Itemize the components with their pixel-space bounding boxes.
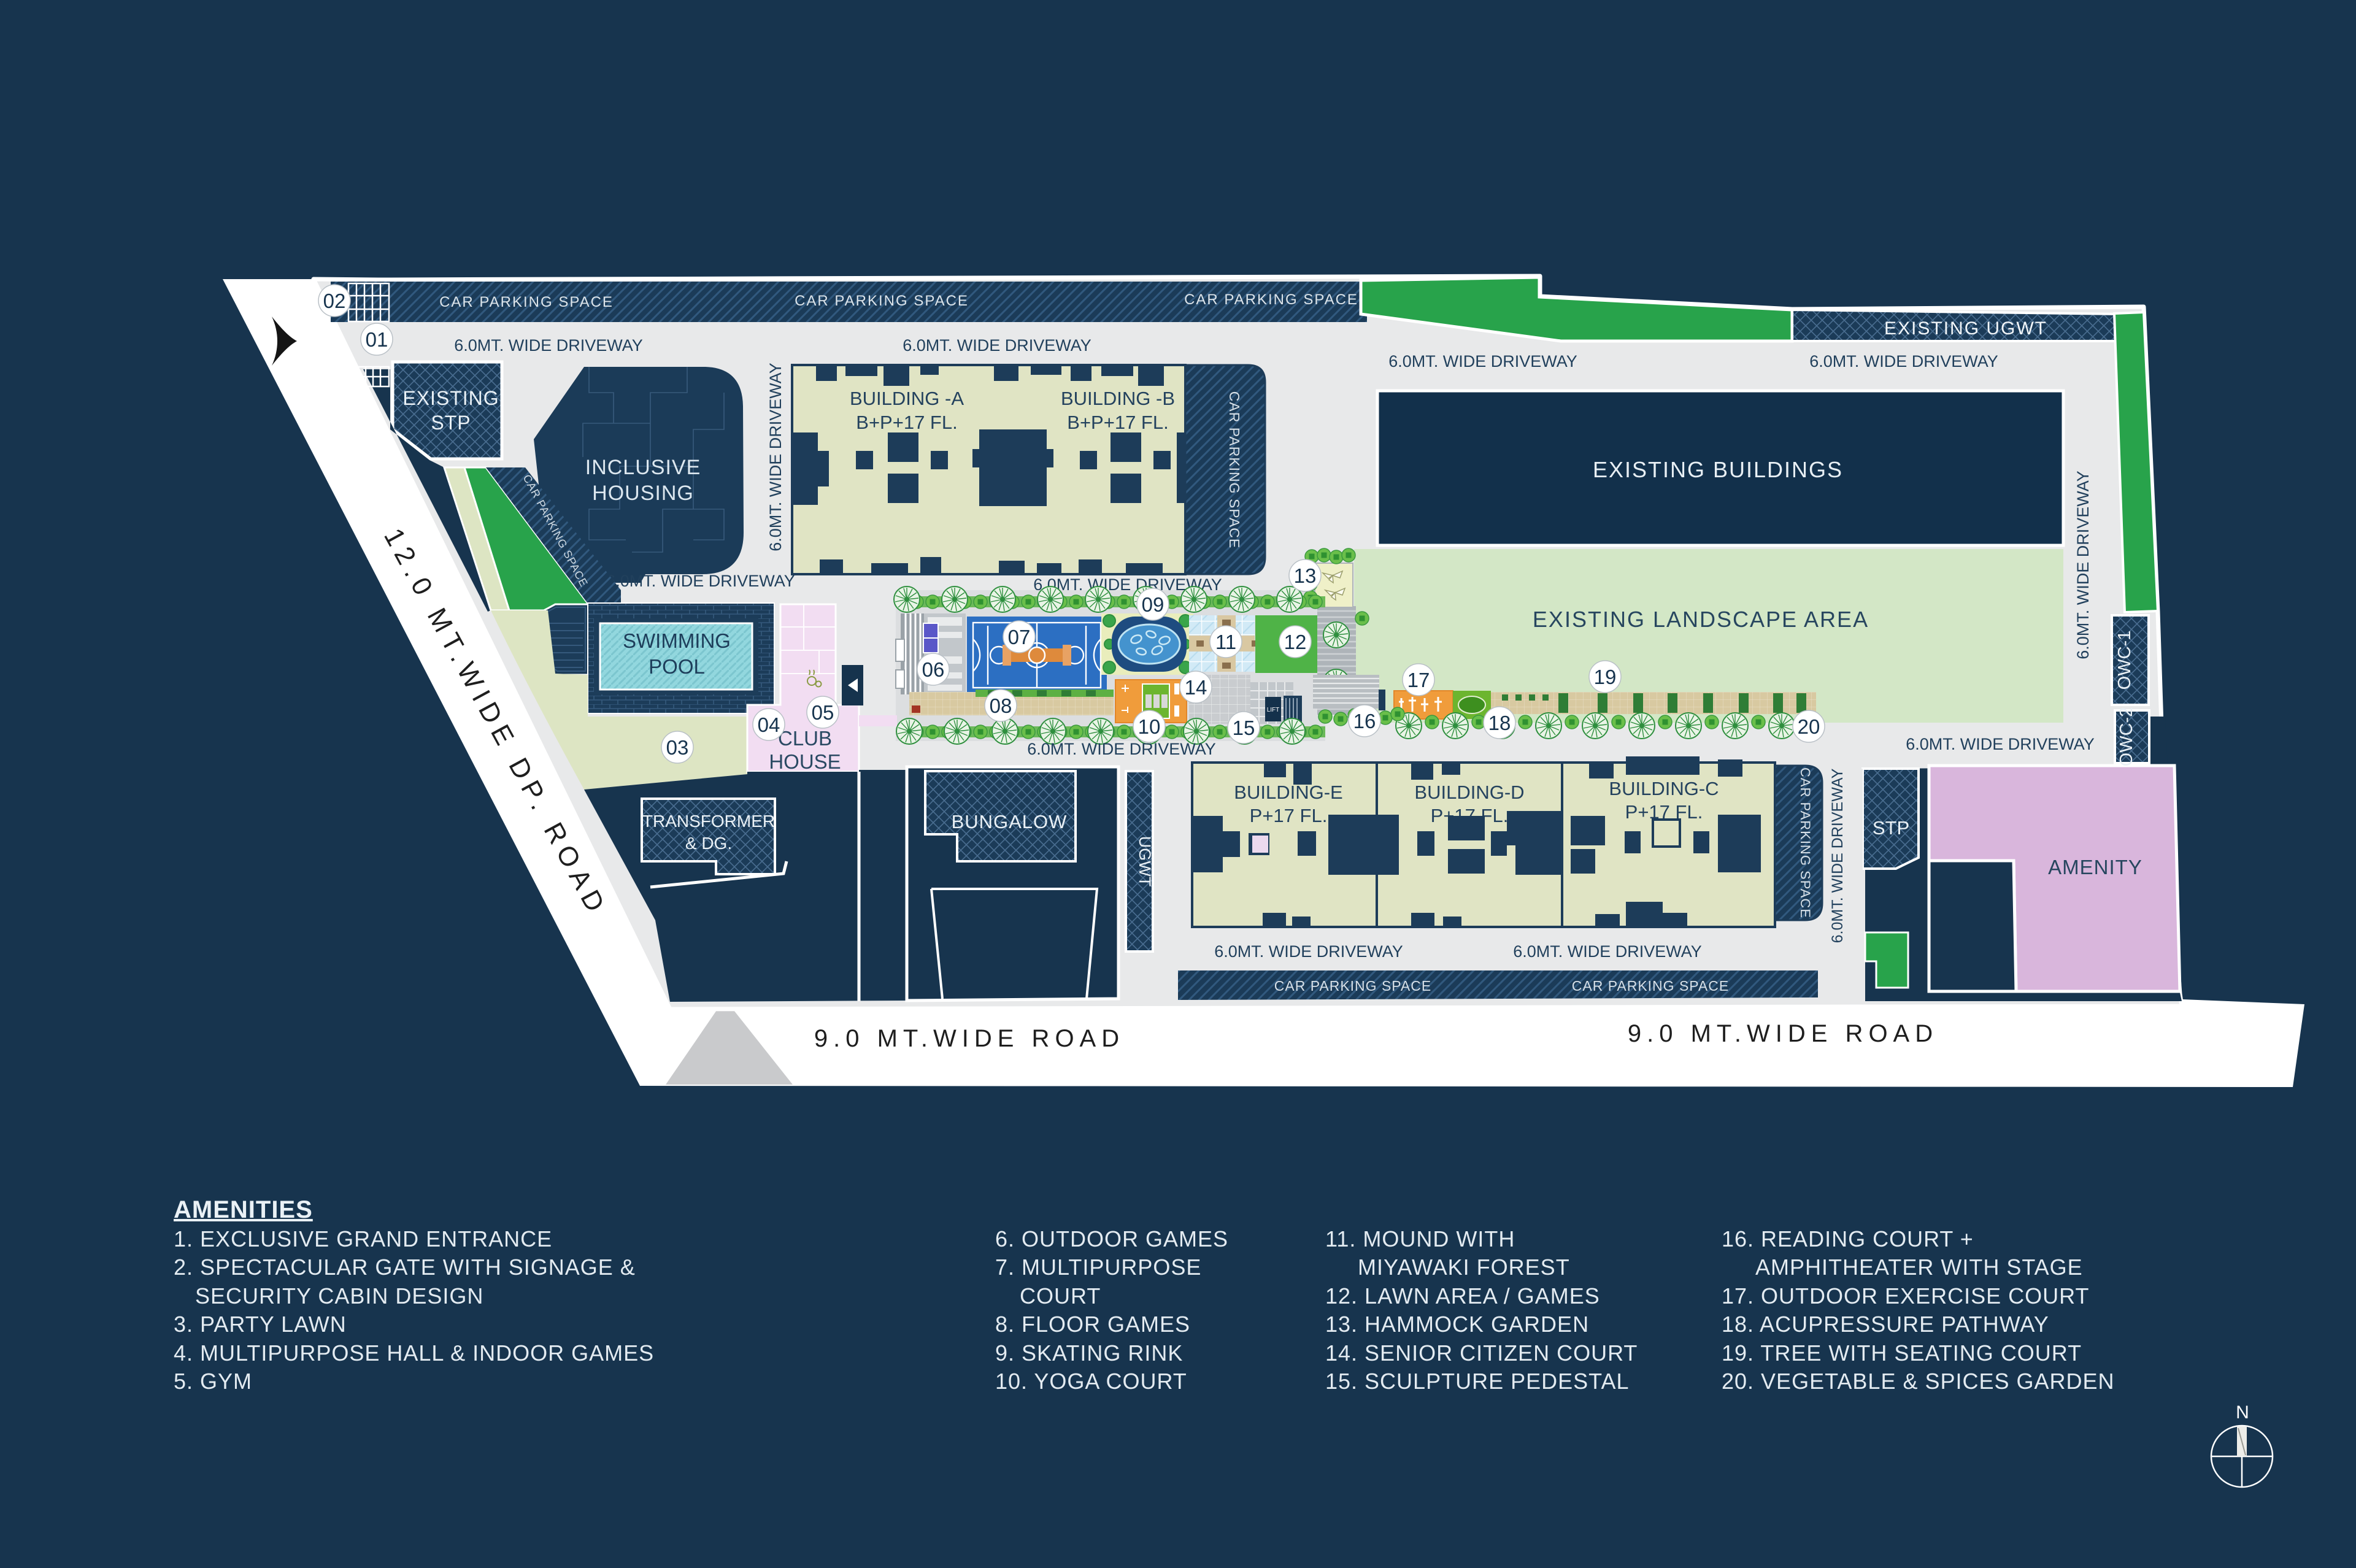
svg-text:14: 14 (1185, 676, 1207, 699)
svg-text:6. OUTDOOR GAMES: 6. OUTDOOR GAMES (995, 1226, 1228, 1251)
svg-text:MIYAWAKI FOREST: MIYAWAKI FOREST (1358, 1255, 1570, 1280)
svg-text:P+17 FL.: P+17 FL. (1250, 805, 1328, 826)
svg-text:9.0 MT.WIDE ROAD: 9.0 MT.WIDE ROAD (1628, 1020, 1938, 1047)
svg-text:03: 03 (666, 736, 689, 759)
svg-text:04: 04 (758, 713, 780, 736)
svg-text:8. FLOOR GAMES: 8. FLOOR GAMES (995, 1312, 1190, 1337)
svg-text:6.0MT. WIDE DRIVEWAY: 6.0MT. WIDE DRIVEWAY (766, 363, 785, 551)
svg-text:UGWT: UGWT (1136, 836, 1154, 886)
svg-text:CAR PARKING SPACE: CAR PARKING SPACE (1274, 978, 1431, 994)
svg-text:AMENITIES: AMENITIES (174, 1196, 313, 1223)
svg-text:EXISTING LANDSCAPE AREA: EXISTING LANDSCAPE AREA (1533, 607, 1869, 632)
svg-text:BUILDING-C: BUILDING-C (1609, 778, 1719, 799)
svg-text:6.0MT. WIDE DRIVEWAY: 6.0MT. WIDE DRIVEWAY (1809, 352, 1998, 371)
svg-text:6.0MT. WIDE DRIVEWAY: 6.0MT. WIDE DRIVEWAY (1513, 942, 1702, 961)
svg-text:BUILDING -A: BUILDING -A (850, 388, 964, 409)
svg-text:EXISTING UGWT: EXISTING UGWT (1884, 318, 2047, 339)
svg-text:02: 02 (323, 290, 346, 312)
svg-text:13: 13 (1294, 564, 1317, 587)
svg-text:STP: STP (1873, 817, 1909, 839)
svg-text:SECURITY CABIN DESIGN: SECURITY CABIN DESIGN (195, 1283, 483, 1309)
svg-text:19. TREE WITH SEATING COURT: 19. TREE WITH SEATING COURT (1722, 1340, 2082, 1366)
svg-text:CAR PARKING SPACE: CAR PARKING SPACE (1226, 391, 1242, 548)
svg-text:01: 01 (366, 328, 388, 351)
svg-text:13. HAMMOCK GARDEN: 13. HAMMOCK GARDEN (1325, 1312, 1589, 1337)
svg-text:05: 05 (812, 701, 834, 724)
svg-text:10: 10 (1138, 715, 1161, 738)
svg-text:17: 17 (1407, 669, 1430, 691)
svg-text:CLUB: CLUB (778, 727, 832, 750)
svg-text:6.0MT. WIDE DRIVEWAY: 6.0MT. WIDE DRIVEWAY (2074, 471, 2092, 659)
svg-text:08: 08 (990, 694, 1012, 717)
svg-text:TRANSFORMER: TRANSFORMER (642, 812, 775, 831)
svg-text:AMPHITHEATER WITH STAGE: AMPHITHEATER WITH STAGE (1755, 1255, 2083, 1280)
svg-text:15. SCULPTURE PEDESTAL: 15. SCULPTURE PEDESTAL (1325, 1369, 1629, 1394)
svg-text:CAR PARKING SPACE: CAR PARKING SPACE (1572, 978, 1729, 994)
svg-text:AMENITY: AMENITY (2048, 856, 2142, 878)
svg-text:1. EXCLUSIVE GRAND ENTRANCE: 1. EXCLUSIVE GRAND ENTRANCE (174, 1226, 552, 1251)
svg-text:16. READING COURT +: 16. READING COURT + (1722, 1226, 1974, 1251)
svg-text:2. SPECTACULAR GATE WITH SIGNA: 2. SPECTACULAR GATE WITH SIGNAGE & (174, 1255, 636, 1280)
svg-text:CAR PARKING SPACE: CAR PARKING SPACE (1184, 291, 1358, 308)
svg-text:STP: STP (431, 412, 471, 434)
svg-text:17. OUTDOOR EXERCISE COURT: 17. OUTDOOR EXERCISE COURT (1722, 1283, 2089, 1309)
svg-text:HOUSING: HOUSING (592, 482, 694, 505)
svg-text:6.0MT. WIDE DRIVEWAY: 6.0MT. WIDE DRIVEWAY (1214, 942, 1403, 961)
svg-text:BUILDING-E: BUILDING-E (1234, 782, 1342, 803)
svg-text:6.0MT. WIDE DRIVEWAY: 6.0MT. WIDE DRIVEWAY (606, 572, 795, 590)
svg-text:20: 20 (1798, 715, 1820, 738)
svg-text:SWIMMING: SWIMMING (623, 629, 731, 652)
svg-text:3. PARTY LAWN: 3. PARTY LAWN (174, 1312, 347, 1337)
svg-text:4. MULTIPURPOSE HALL & INDOOR: 4. MULTIPURPOSE HALL & INDOOR GAMES (174, 1340, 654, 1366)
svg-text:06: 06 (922, 658, 945, 681)
svg-text:CAR PARKING SPACE: CAR PARKING SPACE (1798, 767, 1813, 918)
svg-text:11: 11 (1215, 631, 1236, 653)
svg-text:12. LAWN AREA / GAMES: 12. LAWN AREA / GAMES (1325, 1283, 1600, 1309)
svg-text:09: 09 (1142, 593, 1165, 616)
svg-text:16: 16 (1353, 710, 1376, 732)
svg-text:6.0MT. WIDE DRIVEWAY: 6.0MT. WIDE DRIVEWAY (1027, 740, 1216, 758)
svg-text:18: 18 (1488, 712, 1511, 734)
svg-text:6.0MT. WIDE DRIVEWAY: 6.0MT. WIDE DRIVEWAY (903, 336, 1091, 355)
svg-text:18. ACUPRESSURE PATHWAY: 18. ACUPRESSURE PATHWAY (1722, 1312, 2049, 1337)
svg-text:14. SENIOR CITIZEN COURT: 14. SENIOR CITIZEN COURT (1325, 1340, 1638, 1366)
svg-text:INCLUSIVE: INCLUSIVE (585, 456, 701, 479)
svg-text:B+P+17 FL.: B+P+17 FL. (856, 412, 957, 433)
svg-text:19: 19 (1594, 666, 1617, 688)
svg-text:COURT: COURT (1020, 1283, 1101, 1309)
svg-text:20. VEGETABLE & SPICES GARDEN: 20. VEGETABLE & SPICES GARDEN (1722, 1369, 2115, 1394)
svg-text:B+P+17 FL.: B+P+17 FL. (1067, 412, 1168, 433)
svg-text:EXISTING: EXISTING (402, 387, 499, 409)
svg-text:12: 12 (1284, 631, 1307, 653)
svg-text:HOUSE: HOUSE (769, 750, 841, 773)
svg-text:15: 15 (1233, 717, 1255, 739)
svg-text:CAR PARKING SPACE: CAR PARKING SPACE (795, 293, 969, 309)
svg-text:6.0MT. WIDE DRIVEWAY: 6.0MT. WIDE DRIVEWAY (454, 336, 643, 355)
svg-text:EXISTING BUILDINGS: EXISTING BUILDINGS (1593, 457, 1843, 482)
svg-text:OWC-1: OWC-1 (2115, 631, 2135, 690)
svg-text:CAR PARKING SPACE: CAR PARKING SPACE (439, 294, 614, 310)
svg-text:BUILDING-D: BUILDING-D (1414, 782, 1524, 803)
svg-text:9. SKATING RINK: 9. SKATING RINK (995, 1340, 1183, 1366)
svg-text:7. MULTIPURPOSE: 7. MULTIPURPOSE (995, 1255, 1201, 1280)
svg-text:BUNGALOW: BUNGALOW (952, 811, 1068, 832)
svg-text:N: N (2236, 1402, 2249, 1423)
svg-text:6.0MT. WIDE DRIVEWAY: 6.0MT. WIDE DRIVEWAY (1829, 768, 1846, 943)
svg-text:11. MOUND WITH: 11. MOUND WITH (1325, 1226, 1515, 1251)
svg-text:BUILDING -B: BUILDING -B (1061, 388, 1175, 409)
svg-text:07: 07 (1008, 626, 1031, 648)
svg-text:& DG.: & DG. (685, 834, 732, 853)
svg-text:POOL: POOL (649, 655, 705, 678)
svg-text:OWC-2: OWC-2 (2117, 707, 2136, 767)
svg-text:9.0 MT.WIDE ROAD: 9.0 MT.WIDE ROAD (814, 1025, 1125, 1052)
svg-text:10. YOGA COURT: 10. YOGA COURT (995, 1369, 1187, 1394)
svg-text:6.0MT. WIDE DRIVEWAY: 6.0MT. WIDE DRIVEWAY (1906, 735, 2095, 753)
svg-text:5. GYM: 5. GYM (174, 1369, 252, 1394)
svg-text:LIFT: LIFT (1267, 707, 1280, 713)
svg-text:6.0MT. WIDE DRIVEWAY: 6.0MT. WIDE DRIVEWAY (1388, 352, 1577, 371)
